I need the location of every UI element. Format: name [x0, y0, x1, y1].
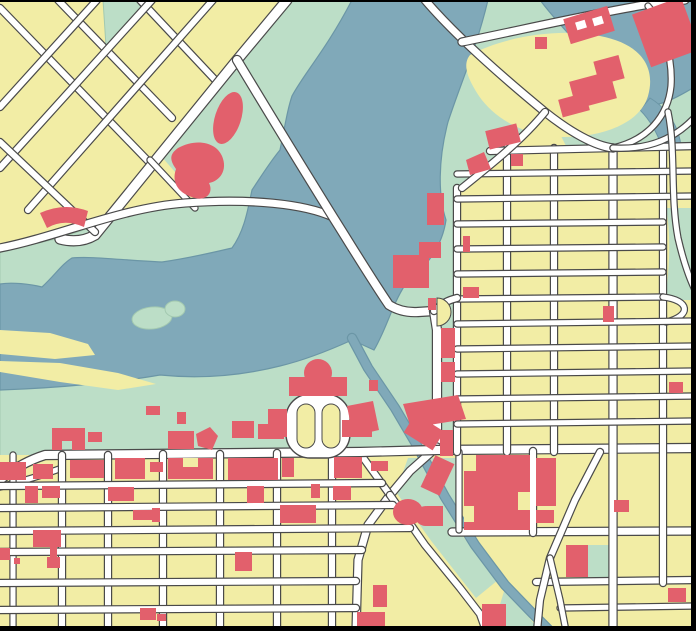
road-eh3	[560, 606, 696, 608]
building-green-square	[566, 545, 588, 577]
building-band-9	[342, 420, 372, 437]
building-band-2	[88, 432, 102, 442]
building-negrid-3	[603, 306, 614, 322]
building-east-2	[536, 510, 554, 523]
building-se-small	[668, 588, 686, 602]
building-east-3	[614, 500, 629, 512]
road-sh5	[0, 581, 356, 583]
frame-bottom	[0, 626, 696, 631]
road-sh2	[0, 505, 393, 508]
building-r1-5	[150, 462, 163, 472]
building-r1-4	[115, 458, 145, 479]
building-crescent-red	[428, 298, 436, 310]
road-neh5	[457, 272, 663, 274]
building-r1-8	[282, 458, 294, 477]
building-r1-7	[228, 458, 278, 480]
building-band-4	[177, 412, 186, 424]
building-r1-3	[70, 460, 104, 478]
building-r4-l	[33, 530, 61, 547]
frame-right	[691, 0, 696, 631]
building-east-1	[536, 458, 556, 506]
building-r5-1	[0, 548, 10, 560]
building-r3-4	[427, 506, 443, 526]
map-canvas[interactable]	[0, 0, 696, 631]
building-r2-4	[247, 486, 264, 503]
road-neh6	[457, 297, 663, 299]
road-neh1	[457, 171, 696, 174]
building-band-8	[258, 424, 284, 439]
building-band-7	[232, 421, 254, 438]
road-neh9	[457, 371, 696, 374]
building-r2-1	[25, 486, 38, 503]
building-bigbox-notch-1	[464, 455, 476, 471]
building-grid-right-1	[669, 382, 683, 393]
building-triangle-inner	[371, 461, 388, 471]
building-band-5	[168, 431, 194, 449]
building-negrid-1	[463, 236, 470, 252]
building-strip-2	[441, 362, 455, 382]
building-grid-top-small	[511, 154, 523, 166]
building-r1-2	[33, 464, 53, 479]
building-legislature-annex	[369, 380, 378, 391]
frame-top	[0, 0, 696, 2]
building-junction-block-a	[393, 255, 429, 288]
road-neh11	[457, 421, 696, 424]
road-neh10	[457, 396, 696, 399]
building-r5-2	[14, 558, 20, 564]
building-small-square-n	[535, 37, 547, 49]
road-neh2	[457, 196, 696, 199]
building-band-3	[146, 406, 160, 415]
road-sh3	[0, 528, 410, 531]
building-r3-3	[280, 505, 316, 523]
road-sh6	[0, 608, 356, 610]
island-small	[165, 301, 185, 317]
road-neh7	[457, 321, 696, 324]
building-bigbox-notch-2	[464, 506, 474, 522]
building-r1-bowl-notch	[183, 458, 198, 467]
road-neh8	[457, 346, 696, 349]
building-r5-3	[235, 552, 252, 571]
building-r2-3	[108, 487, 134, 501]
building-r1-1	[0, 462, 26, 480]
horseshoe-lobe-right	[322, 404, 340, 448]
building-r3-2	[152, 508, 160, 522]
building-negrid-2	[463, 287, 479, 298]
building-strip-1	[441, 328, 455, 358]
building-riverside-tall	[427, 193, 444, 225]
building-r6-1	[140, 608, 156, 620]
building-r4-sq	[47, 557, 60, 568]
road-sh1	[0, 483, 382, 486]
building-legislature-bar	[289, 377, 347, 396]
building-junction-block-b	[419, 242, 441, 258]
city-map	[0, 0, 696, 631]
road-neh3	[457, 222, 663, 224]
building-r5-4	[373, 585, 387, 607]
building-r1-9	[334, 457, 362, 478]
building-r2-2	[42, 486, 60, 498]
building-bigbox-notch-3	[518, 492, 530, 510]
building-r2-5	[311, 484, 320, 498]
road-neh4	[457, 247, 663, 249]
building-r2-6	[333, 486, 351, 500]
building-r6-2	[157, 614, 166, 621]
horseshoe-lobe-left	[297, 404, 315, 448]
